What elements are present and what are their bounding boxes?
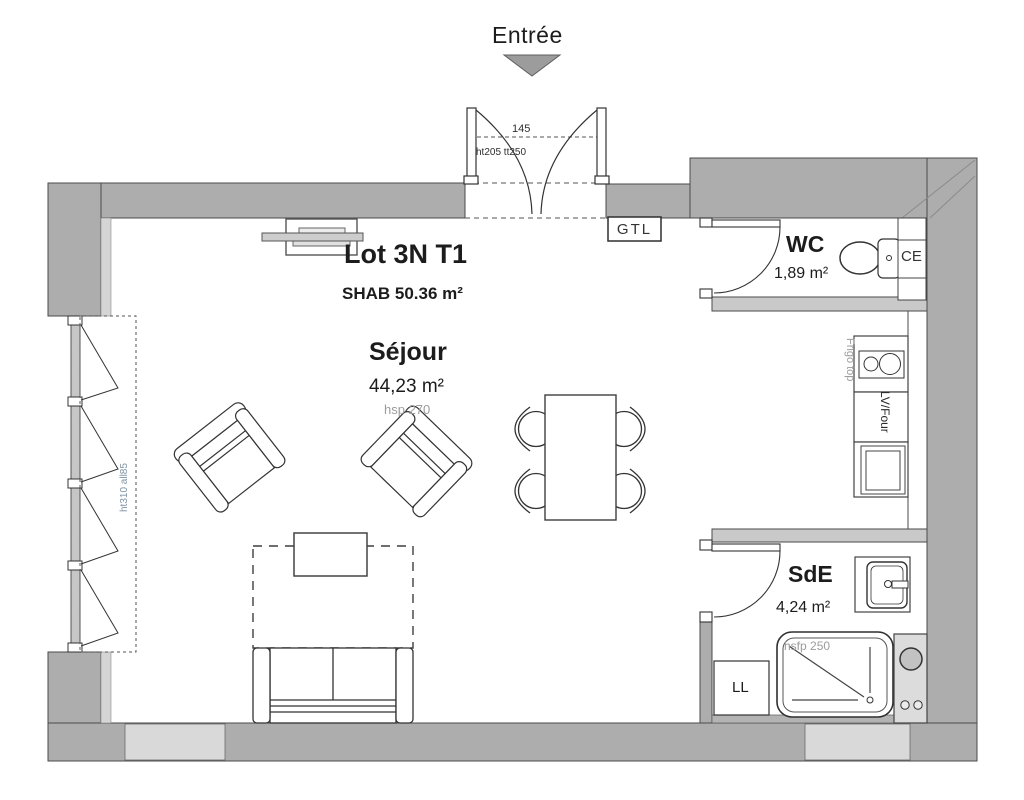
burner-large (880, 354, 901, 375)
room-area-sde: 4,24 m² (776, 600, 830, 616)
ceiling-height-sejour: hsp 270 (384, 403, 430, 416)
wc-bottom-wall (712, 297, 927, 311)
sde-top-wall (712, 529, 927, 542)
door-height-dimension: ht205 tt250 (476, 148, 526, 158)
dining-table (545, 395, 616, 520)
entrance-label: Entrée (492, 24, 563, 47)
wall-right (927, 158, 977, 723)
room-name-wc: WC (786, 233, 824, 256)
washbasin (855, 557, 910, 612)
entrance-door-hinge-left (464, 176, 478, 184)
wall-left-upper (48, 183, 101, 316)
entrance-door-swing-right (541, 110, 597, 214)
water-heater-label: CE (901, 249, 922, 264)
entrance-arrow-icon (504, 55, 560, 76)
wall-linings (101, 218, 111, 723)
sde-basin-column (894, 634, 927, 723)
window-casement-marks (81, 325, 118, 646)
kitchen-duct (908, 311, 927, 529)
dishwasher-oven-label: LV/Four (879, 391, 891, 433)
sde-door-swing (714, 551, 780, 617)
floor-plan: Entrée 145 ht205 tt250 Lot 3N T1 SHAB 50… (0, 0, 1024, 800)
entrance-door (464, 108, 609, 218)
room-name-sde: SdE (788, 563, 833, 586)
faucet-icon (885, 581, 909, 589)
wc-door-swing (714, 227, 780, 293)
sde-door-leaf (712, 544, 780, 551)
plan-linework (0, 0, 1024, 800)
bottom-wall-light-left (125, 724, 225, 760)
sde-left-wall (700, 622, 712, 723)
burner-small (864, 357, 878, 371)
sde-door (700, 540, 780, 622)
wall-top-left (48, 183, 465, 218)
window-dimension-label: ht310 all85 (120, 463, 130, 512)
shower-drain-icon (867, 697, 873, 703)
gtl-label: GTL (608, 217, 661, 241)
sofa (253, 648, 413, 723)
entrance-door-leaf-left (467, 108, 476, 178)
cooktop (859, 351, 904, 378)
wc-door (700, 218, 780, 298)
washing-machine-label: LL (732, 680, 749, 695)
room-area-wc: 1,89 m² (774, 266, 828, 282)
armchair-right (359, 403, 475, 519)
wall-top-right-thin (606, 184, 690, 218)
ceiling-height-sde: hsfp 250 (784, 640, 830, 652)
armchair-left (171, 400, 287, 514)
dining-set (515, 395, 645, 520)
lot-title: Lot 3N T1 (344, 241, 467, 268)
room-area-sejour: 44,23 m² (369, 377, 444, 396)
entrance-door-hinge-right (595, 176, 609, 184)
lot-shab-area: SHAB 50.36 m² (342, 285, 463, 302)
bottom-wall-light-right (805, 724, 910, 760)
coffee-table (294, 533, 367, 576)
toilet-bowl (840, 242, 880, 274)
wc-door-leaf (712, 220, 780, 227)
toilet (840, 239, 900, 278)
room-name-sejour: Séjour (369, 340, 447, 365)
fridge-label: Frigo top (844, 338, 855, 381)
kitchen-sink (854, 442, 908, 497)
door-width-dimension: 145 (512, 124, 530, 135)
entrance-door-leaf-right (597, 108, 606, 178)
